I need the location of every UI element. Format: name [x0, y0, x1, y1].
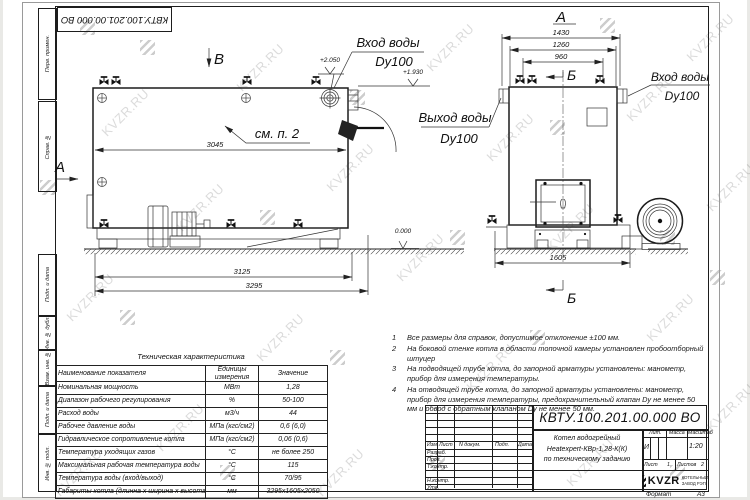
dim-1430: 1430: [553, 28, 571, 37]
dim-3045: 3045: [207, 140, 225, 149]
table-row: Номинальная мощностьМВт1,28: [56, 382, 328, 395]
furnace-door-side: [338, 90, 396, 152]
table-row: Температура уходящих газов°Сне более 250: [56, 447, 328, 460]
format-value: А3: [697, 491, 705, 498]
note-item: 2На боковой стенке котла в области топоч…: [392, 344, 705, 364]
role-ncontrol: Н.контр.: [427, 478, 449, 484]
table-row: Рабочее давление водыМПа (кгс/см2)0,6 (6…: [56, 421, 328, 434]
level-mark-outlet: +1.930: [358, 69, 430, 86]
scale-value: 1:20: [689, 443, 703, 450]
note-text: Все размеры для справок, допустимое откл…: [407, 333, 705, 343]
label-outlet-dn: Dy100: [440, 131, 478, 146]
company-logo: KVZR КОТЕЛЬНЫЙ ЗАВОД РЭП: [642, 470, 708, 491]
note-number: 1: [392, 333, 407, 343]
logo-text: KVZR: [648, 475, 680, 487]
rev-col-ndoc: N докум.: [459, 442, 480, 448]
sheets-num: 2: [701, 462, 704, 468]
draft-fan: [622, 199, 683, 250]
section-marker-b-bottom: Б: [567, 290, 576, 306]
table-row: Габариты котла (длинна х ширина х высота…: [56, 486, 328, 499]
outlet-flange: [499, 89, 509, 103]
margin-label: Взам. инв. №: [45, 351, 51, 386]
format-label: Формат: [646, 491, 671, 498]
logo-caption: КОТЕЛЬНЫЙ ЗАВОД РЭП: [682, 475, 708, 485]
role-approved: Утв.: [427, 485, 439, 491]
label-inlet-left-dn: Dy100: [375, 54, 413, 69]
svg-text:0.000: 0.000: [395, 228, 412, 235]
col-name: Наименование показателя: [56, 366, 206, 382]
note-item: 3На подводящей трубе котла, до запорной …: [392, 364, 705, 384]
sheets-label: Листов: [677, 462, 696, 468]
note-text: На подводящей трубе котла, до запорной а…: [407, 364, 705, 384]
level-mark-inlet: +2.050: [318, 57, 344, 89]
role-developed: Разраб.: [427, 450, 446, 456]
product-name-line2: Heatexpert-КВр-1,28-К(К): [547, 445, 627, 456]
level-mark-zero: 0.000: [391, 228, 419, 249]
table-row: Диапазон рабочего регулирования%50-100: [56, 395, 328, 408]
product-name: Котел водогрейный Heatexpert-КВр-1,28-К(…: [532, 430, 642, 470]
lit-value: И: [644, 444, 649, 451]
dim-1260: 1260: [553, 40, 571, 49]
title-block: Изм Лист N докум. Подп. Дата Разраб. Про…: [425, 405, 707, 490]
label-see-note: см. п. 2: [255, 126, 300, 141]
label-inlet-right: Вход воды: [651, 70, 709, 84]
inlet-flange: [617, 89, 627, 103]
doc-number: КВТУ.100.201.00.000 ВО: [532, 406, 708, 429]
table-row: Расход водым3/ч44: [56, 408, 328, 421]
table-row: Гидравлическое сопротивление котлаМПа (к…: [56, 434, 328, 447]
dim-3125: 3125: [234, 267, 252, 276]
label-inlet-left: Вход воды: [356, 35, 420, 50]
view-marker-b: В: [214, 51, 224, 68]
scale-header: Масштаб: [688, 430, 713, 436]
right-view: 1430 1260 960 А Б Б 1605 Выход воды Dy10…: [418, 9, 710, 306]
rev-col-date: Дата: [518, 442, 532, 448]
table-row: Температура воды (вход/выход)°С70/95: [56, 473, 328, 486]
water-inlet-flange: [320, 88, 341, 109]
label-outlet: Выход воды: [418, 110, 492, 125]
tech-table-title: Техническая характеристика: [55, 352, 327, 365]
margin-label: Инв. № подл.: [45, 446, 51, 481]
boiler-base: [507, 225, 630, 248]
col-units: Единицы измерения: [206, 366, 259, 382]
role-tcontrol: Т.контр.: [427, 464, 448, 470]
role-checked: Пров.: [427, 457, 441, 463]
tech-table: Наименование показателя Единицы измерени…: [55, 365, 328, 499]
dim-3295: 3295: [246, 281, 264, 290]
blower-fan-motor: [148, 206, 210, 247]
lit-header: Лит.: [649, 430, 661, 436]
svg-text:+2.050: +2.050: [320, 57, 340, 64]
table-row: Максимальная рабочая температура воды°С1…: [56, 460, 328, 473]
view-label-a: А: [555, 9, 566, 26]
left-view: 3045: [54, 35, 464, 296]
product-name-line3: по техническому заданию: [544, 455, 631, 466]
drawing-canvas: 3045: [0, 0, 750, 332]
dim-1605: 1605: [550, 253, 568, 262]
note-text: На боковой стенке котла в области топочн…: [407, 344, 705, 364]
section-marker-b-top: Б: [567, 67, 576, 83]
svg-text:+1.930: +1.930: [403, 69, 423, 76]
note-number: 3: [392, 364, 407, 384]
col-value: Значение: [259, 366, 328, 382]
rev-col-list: Лист: [439, 442, 453, 448]
rev-col-podp: Подп.: [495, 442, 509, 448]
furnace-door-front: [530, 180, 590, 227]
note-item: 1Все размеры для справок, допустимое отк…: [392, 333, 705, 343]
note-number: 4: [392, 385, 407, 414]
sheet-label: Лист: [644, 462, 658, 468]
tech-table-header: Наименование показателя Единицы измерени…: [56, 366, 328, 382]
note-number: 2: [392, 344, 407, 364]
view-marker-a: А: [54, 159, 65, 176]
mass-header: Масса: [669, 430, 685, 436]
product-name-line1: Котел водогрейный: [554, 434, 621, 445]
margin-label: Подп. и дата: [45, 392, 51, 427]
notes-block: 1Все размеры для справок, допустимое отк…: [392, 333, 705, 415]
rev-col-izm: Изм: [427, 442, 437, 448]
sheet-num: 1: [667, 462, 670, 468]
dim-960: 960: [555, 52, 568, 61]
logo-stripes-icon: [642, 475, 646, 487]
label-inlet-right-dn: Dy100: [665, 89, 700, 103]
tech-characteristics: Техническая характеристика Наименование …: [55, 352, 327, 499]
